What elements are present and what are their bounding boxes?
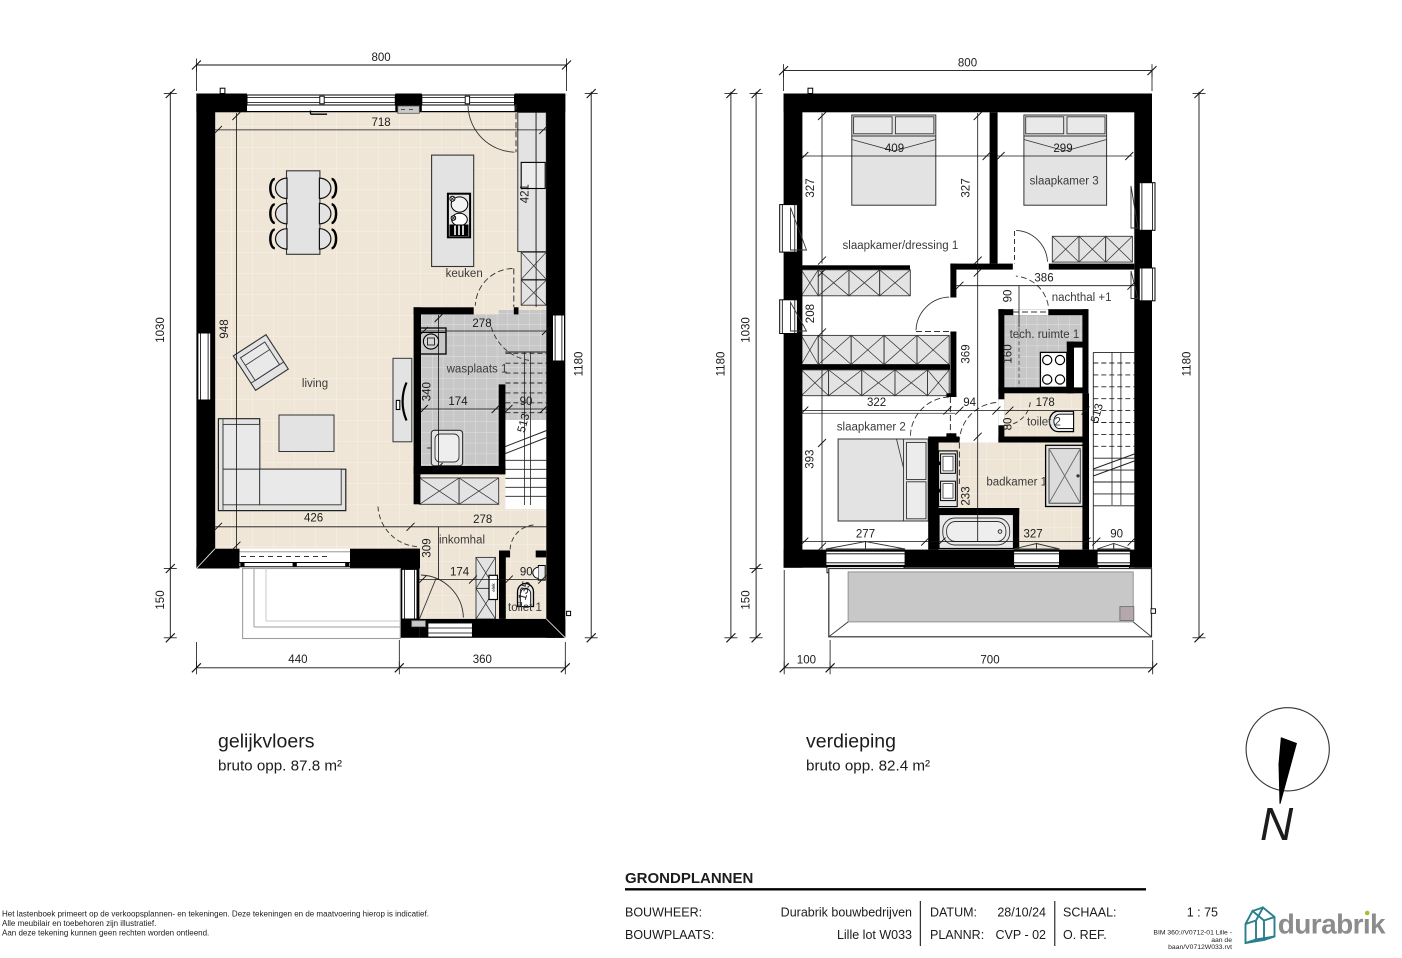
svg-text:Aan deze tekening kunnen geen: Aan deze tekening kunnen geen rechten wo… <box>2 929 209 938</box>
svg-text:327: 327 <box>961 178 973 197</box>
svg-text:slaapkamer 3: slaapkamer 3 <box>1030 176 1099 188</box>
svg-text:299: 299 <box>1053 143 1072 155</box>
svg-text:94: 94 <box>963 397 976 409</box>
svg-text:wasplaats 1: wasplaats 1 <box>446 364 508 376</box>
svg-text:718: 718 <box>372 117 391 129</box>
svg-text:948: 948 <box>219 319 231 338</box>
svg-text:327: 327 <box>805 178 817 197</box>
svg-text:393: 393 <box>804 450 816 469</box>
svg-text:CVP - 02: CVP - 02 <box>996 928 1047 942</box>
svg-text:keuken: keuken <box>446 268 483 280</box>
svg-text:slaapkamer 2: slaapkamer 2 <box>837 422 906 434</box>
svg-text:bruto opp. 82.4 m²: bruto opp. 82.4 m² <box>806 758 930 775</box>
svg-text:1180: 1180 <box>1182 352 1194 377</box>
svg-text:DATUM:: DATUM: <box>930 906 977 920</box>
svg-text:322: 322 <box>867 397 886 409</box>
svg-text:toilet 1: toilet 1 <box>508 602 542 614</box>
svg-text:durabrık: durabrık <box>1278 909 1386 940</box>
svg-text:386: 386 <box>1034 273 1053 285</box>
svg-text:baan/V0712W033.rvt: baan/V0712W033.rvt <box>1168 944 1232 951</box>
svg-text:PLANNR:: PLANNR: <box>930 928 984 942</box>
svg-text:gelijkvloers: gelijkvloers <box>218 731 315 753</box>
svg-text:409: 409 <box>885 143 904 155</box>
svg-text:1180: 1180 <box>574 352 586 377</box>
svg-text:327: 327 <box>1024 529 1043 541</box>
svg-text:tech. ruimte 1: tech. ruimte 1 <box>1010 329 1080 341</box>
svg-text:BOUWHEER:: BOUWHEER: <box>625 906 702 920</box>
svg-text:174: 174 <box>448 396 468 408</box>
svg-text:Alle meubilair en toebehoren z: Alle meubilair en toebehoren zijn illust… <box>2 919 156 928</box>
svg-text:1180: 1180 <box>716 352 728 377</box>
svg-text:278: 278 <box>472 318 491 330</box>
svg-text:309: 309 <box>422 538 434 557</box>
svg-text:340: 340 <box>421 382 433 401</box>
svg-text:174: 174 <box>450 567 470 579</box>
svg-text:BIM 360://V0712-01 Lille -: BIM 360://V0712-01 Lille - <box>1153 930 1232 937</box>
svg-text:208: 208 <box>805 304 817 323</box>
svg-text:BOUWPLAATS:: BOUWPLAATS: <box>625 928 714 942</box>
svg-text:360: 360 <box>473 654 492 666</box>
svg-text:1030: 1030 <box>155 317 167 343</box>
svg-text:233: 233 <box>961 486 973 505</box>
svg-text:N: N <box>1260 798 1294 850</box>
svg-text:badkamer 1: badkamer 1 <box>986 477 1047 489</box>
svg-text:28/10/24: 28/10/24 <box>997 906 1046 920</box>
svg-text:150: 150 <box>741 590 753 609</box>
svg-text:369: 369 <box>961 344 973 363</box>
svg-text:O. REF.: O. REF. <box>1063 928 1107 942</box>
svg-text:Lille lot W033: Lille lot W033 <box>837 928 912 942</box>
svg-text:277: 277 <box>856 529 875 541</box>
svg-text:278: 278 <box>473 514 492 526</box>
svg-text:700: 700 <box>980 654 999 666</box>
svg-text:Het lastenboek primeert op de: Het lastenboek primeert op de verkoopspl… <box>2 910 429 919</box>
svg-text:90: 90 <box>520 396 533 408</box>
svg-text:nachthal +1: nachthal +1 <box>1052 292 1112 304</box>
svg-text:slaapkamer/dressing 1: slaapkamer/dressing 1 <box>843 240 959 252</box>
svg-text:440: 440 <box>288 654 307 666</box>
svg-text:elek: elek <box>491 583 496 592</box>
svg-text:aan de: aan de <box>1211 937 1232 944</box>
svg-text:80: 80 <box>1003 418 1015 431</box>
svg-text:toilet 2: toilet 2 <box>1027 417 1061 429</box>
svg-text:800: 800 <box>372 52 391 64</box>
svg-text:800: 800 <box>958 58 977 70</box>
svg-text:100: 100 <box>797 654 816 666</box>
svg-text:421: 421 <box>519 184 531 203</box>
svg-text:150: 150 <box>155 590 167 609</box>
svg-text:GRONDPLANNEN: GRONDPLANNEN <box>625 870 753 887</box>
svg-text:90: 90 <box>1003 290 1015 303</box>
svg-text:160: 160 <box>1003 344 1015 363</box>
svg-text:178: 178 <box>1036 397 1055 409</box>
svg-text:Durabrik bouwbedrijven: Durabrik bouwbedrijven <box>781 906 912 920</box>
svg-text:90: 90 <box>1110 529 1123 541</box>
svg-text:1 : 75: 1 : 75 <box>1187 906 1218 920</box>
svg-text:verdieping: verdieping <box>806 731 896 753</box>
svg-text:1030: 1030 <box>741 317 753 343</box>
svg-text:SCHAAL:: SCHAAL: <box>1063 906 1117 920</box>
svg-text:426: 426 <box>304 513 323 525</box>
svg-text:bruto opp. 87.8 m²: bruto opp. 87.8 m² <box>218 758 342 775</box>
svg-text:inkomhal: inkomhal <box>439 535 485 547</box>
svg-text:living: living <box>302 378 328 390</box>
svg-text:90: 90 <box>520 567 533 579</box>
